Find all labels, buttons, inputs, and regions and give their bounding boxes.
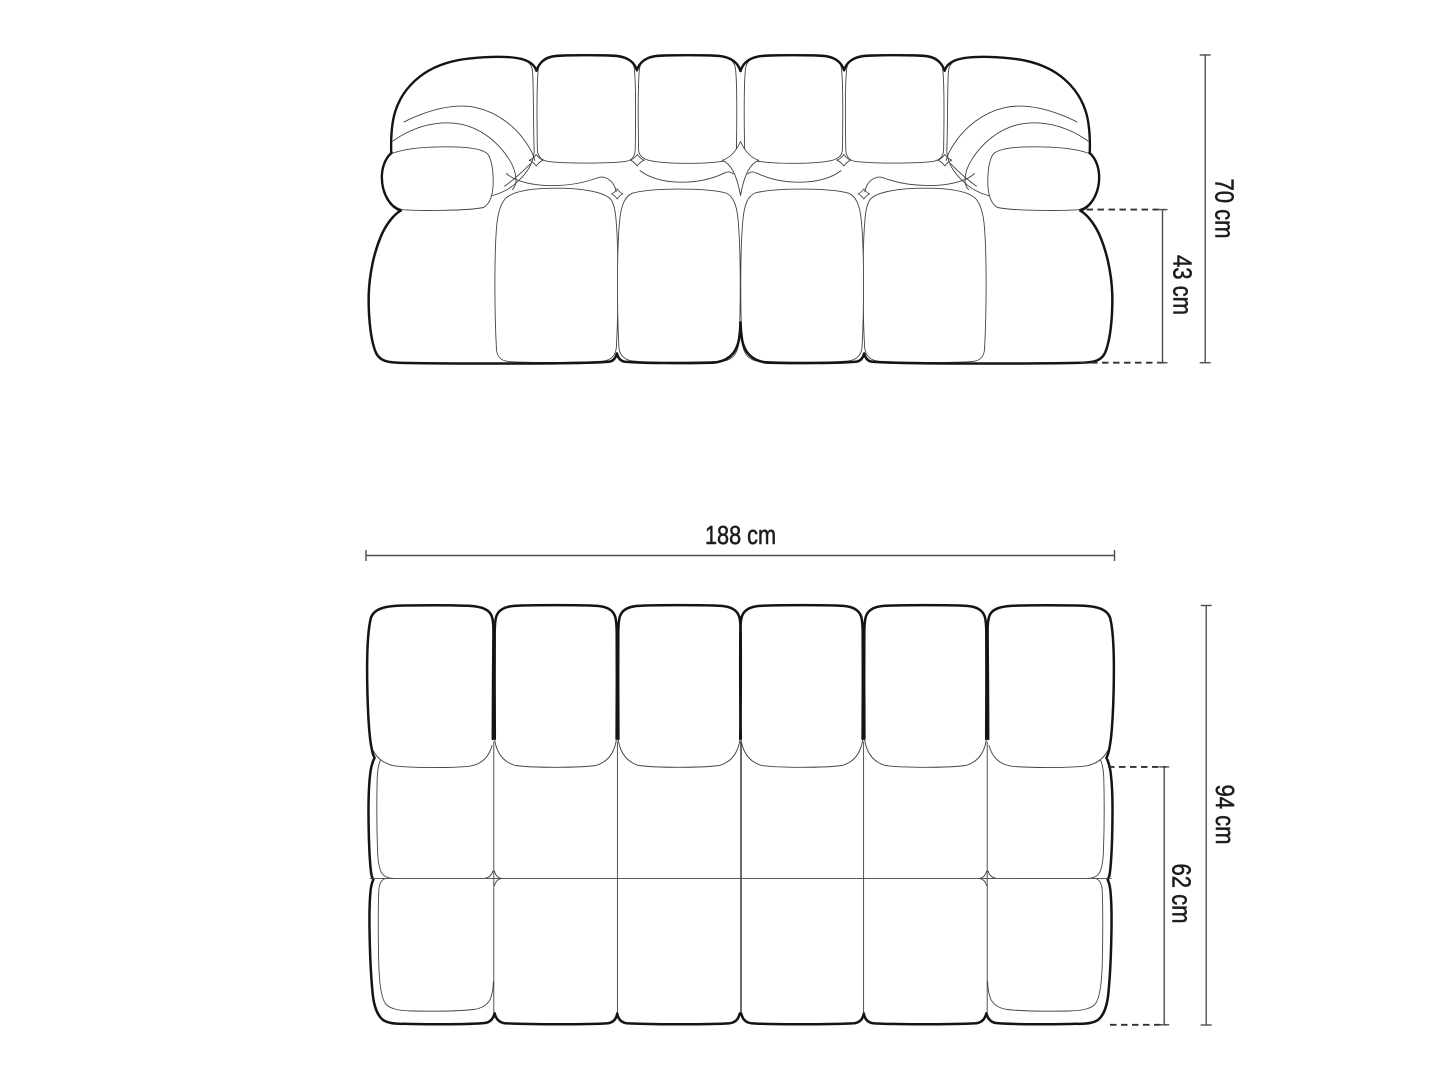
svg-text:70 cm: 70 cm: [1210, 179, 1238, 239]
svg-text:94 cm: 94 cm: [1210, 785, 1238, 845]
svg-text:188 cm: 188 cm: [705, 522, 776, 550]
svg-text:43 cm: 43 cm: [1168, 255, 1196, 315]
svg-text:62 cm: 62 cm: [1167, 864, 1195, 924]
